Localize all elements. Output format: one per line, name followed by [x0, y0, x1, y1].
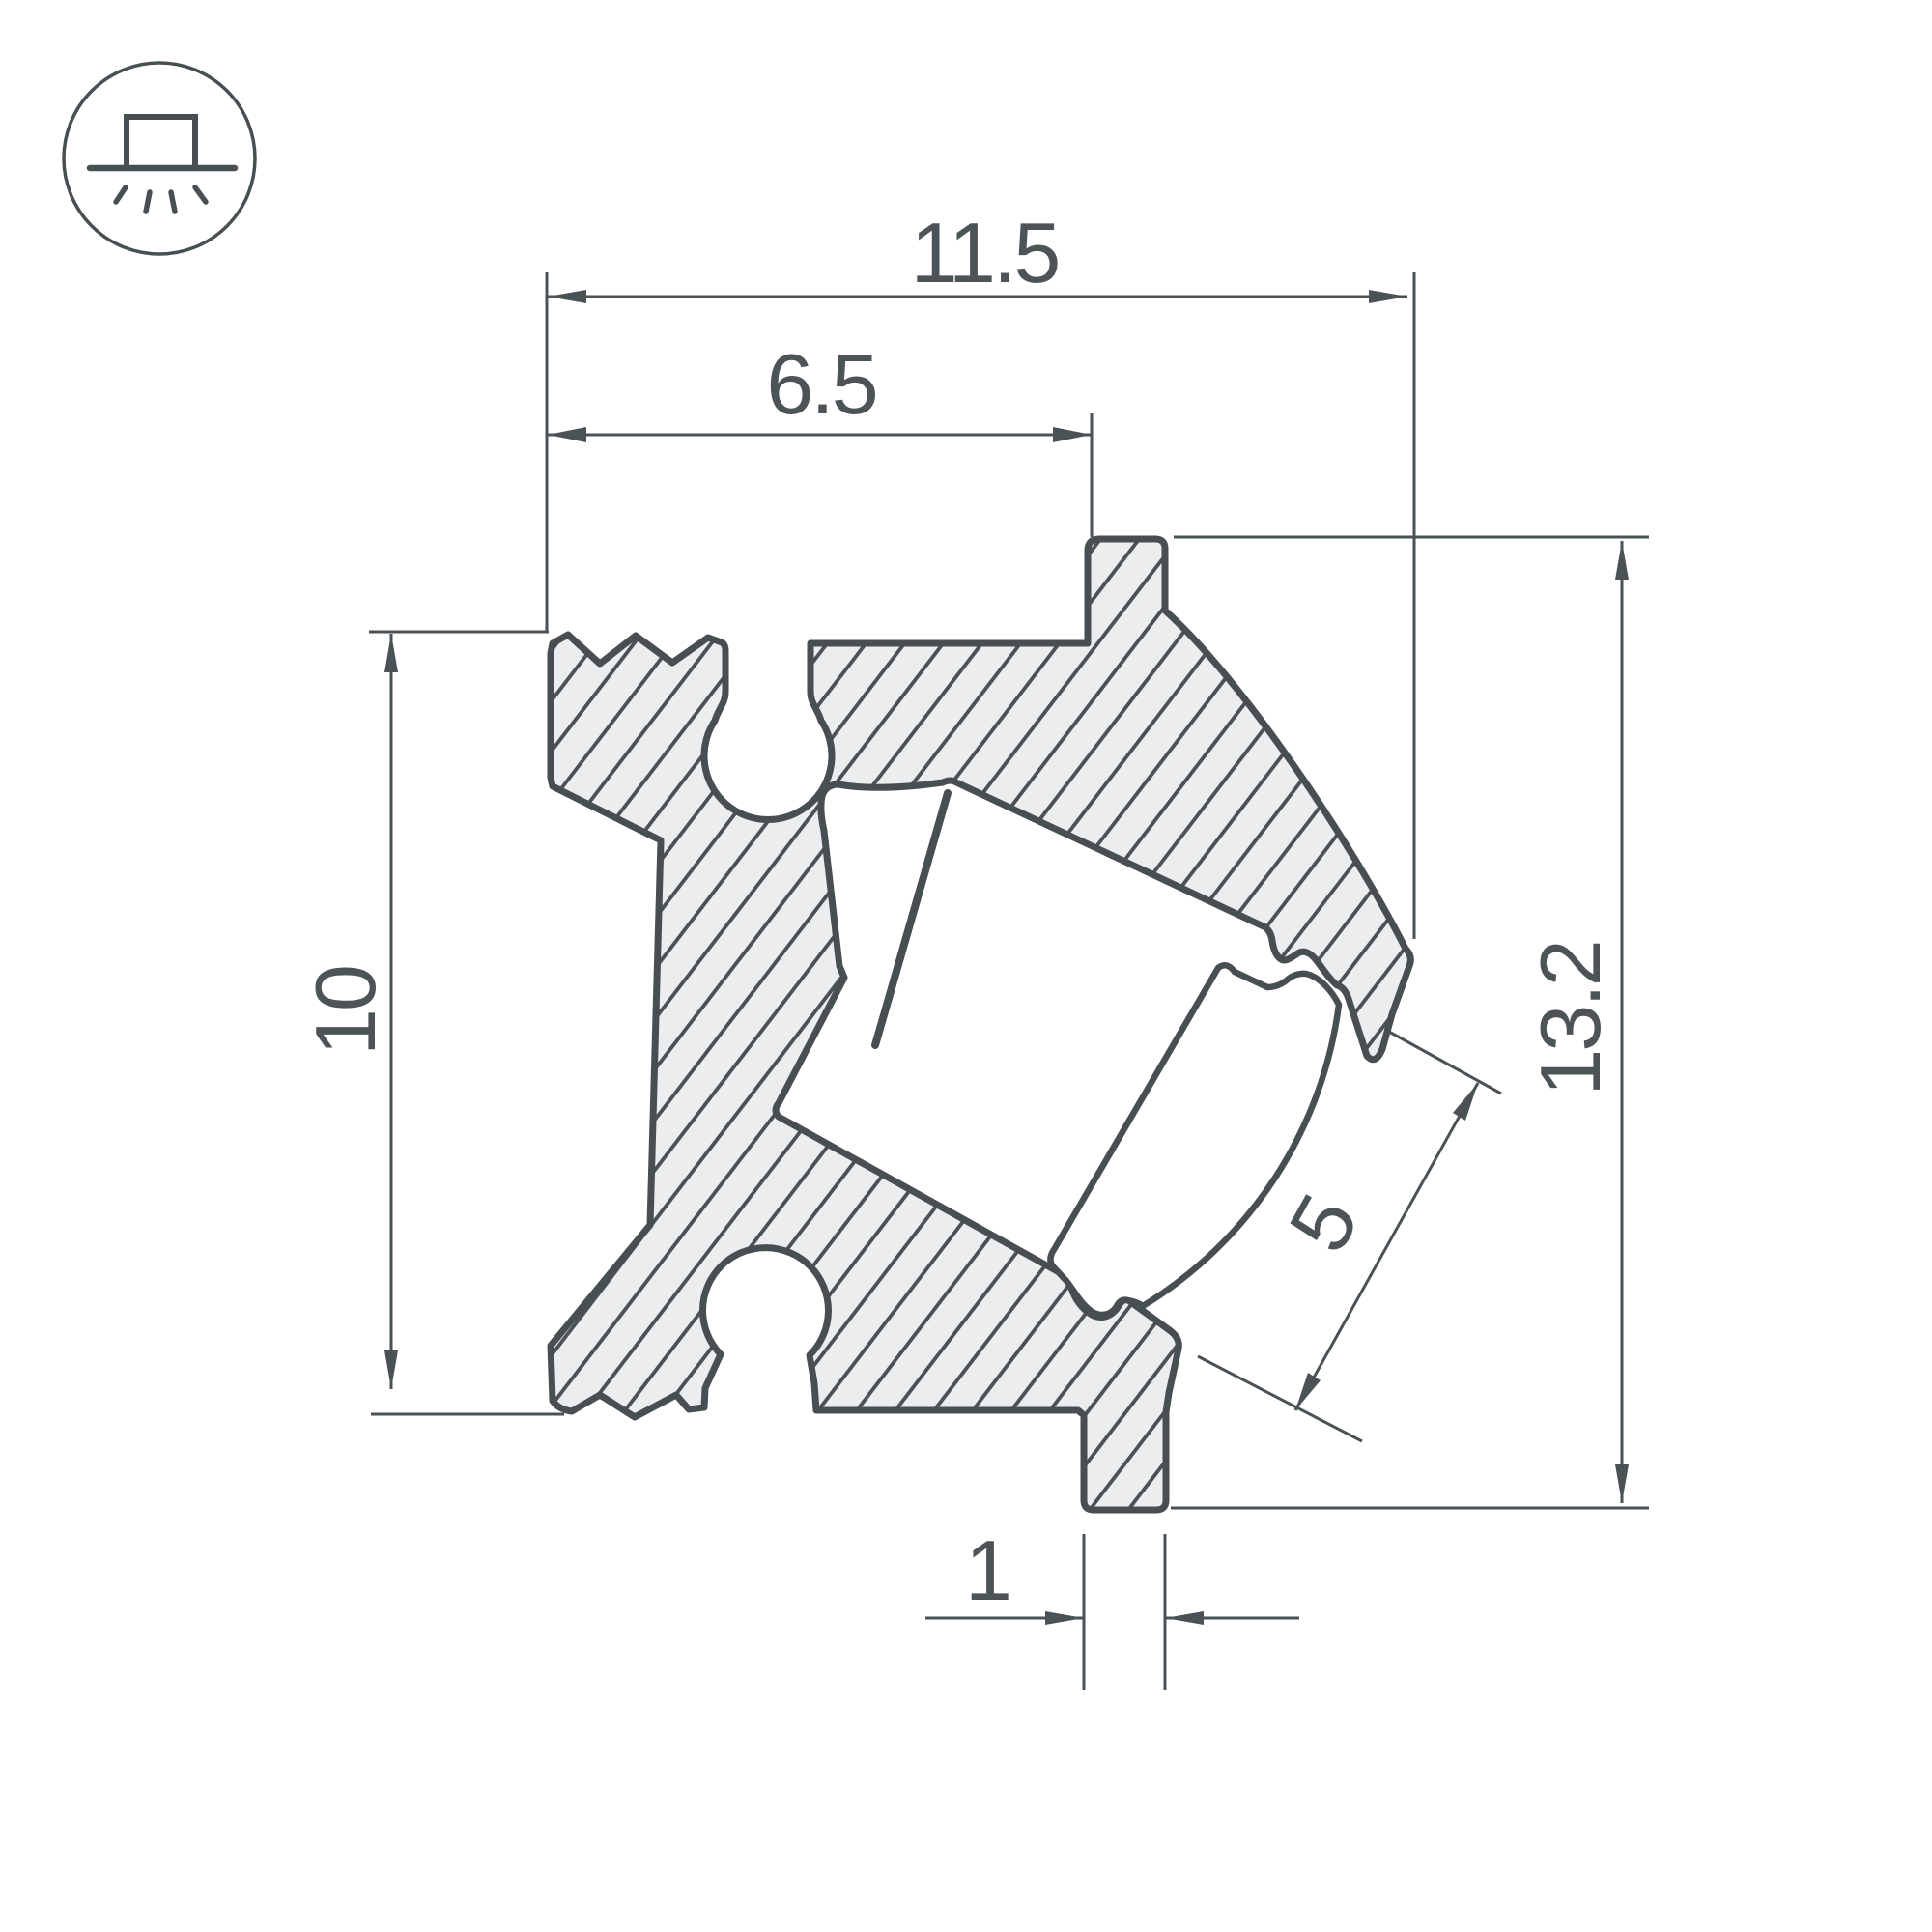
svg-text:1: 1: [965, 1522, 1009, 1618]
svg-text:10: 10: [298, 967, 393, 1056]
svg-text:13.2: 13.2: [1522, 942, 1618, 1095]
svg-text:6.5: 6.5: [766, 336, 875, 432]
svg-text:11.5: 11.5: [911, 205, 1059, 300]
